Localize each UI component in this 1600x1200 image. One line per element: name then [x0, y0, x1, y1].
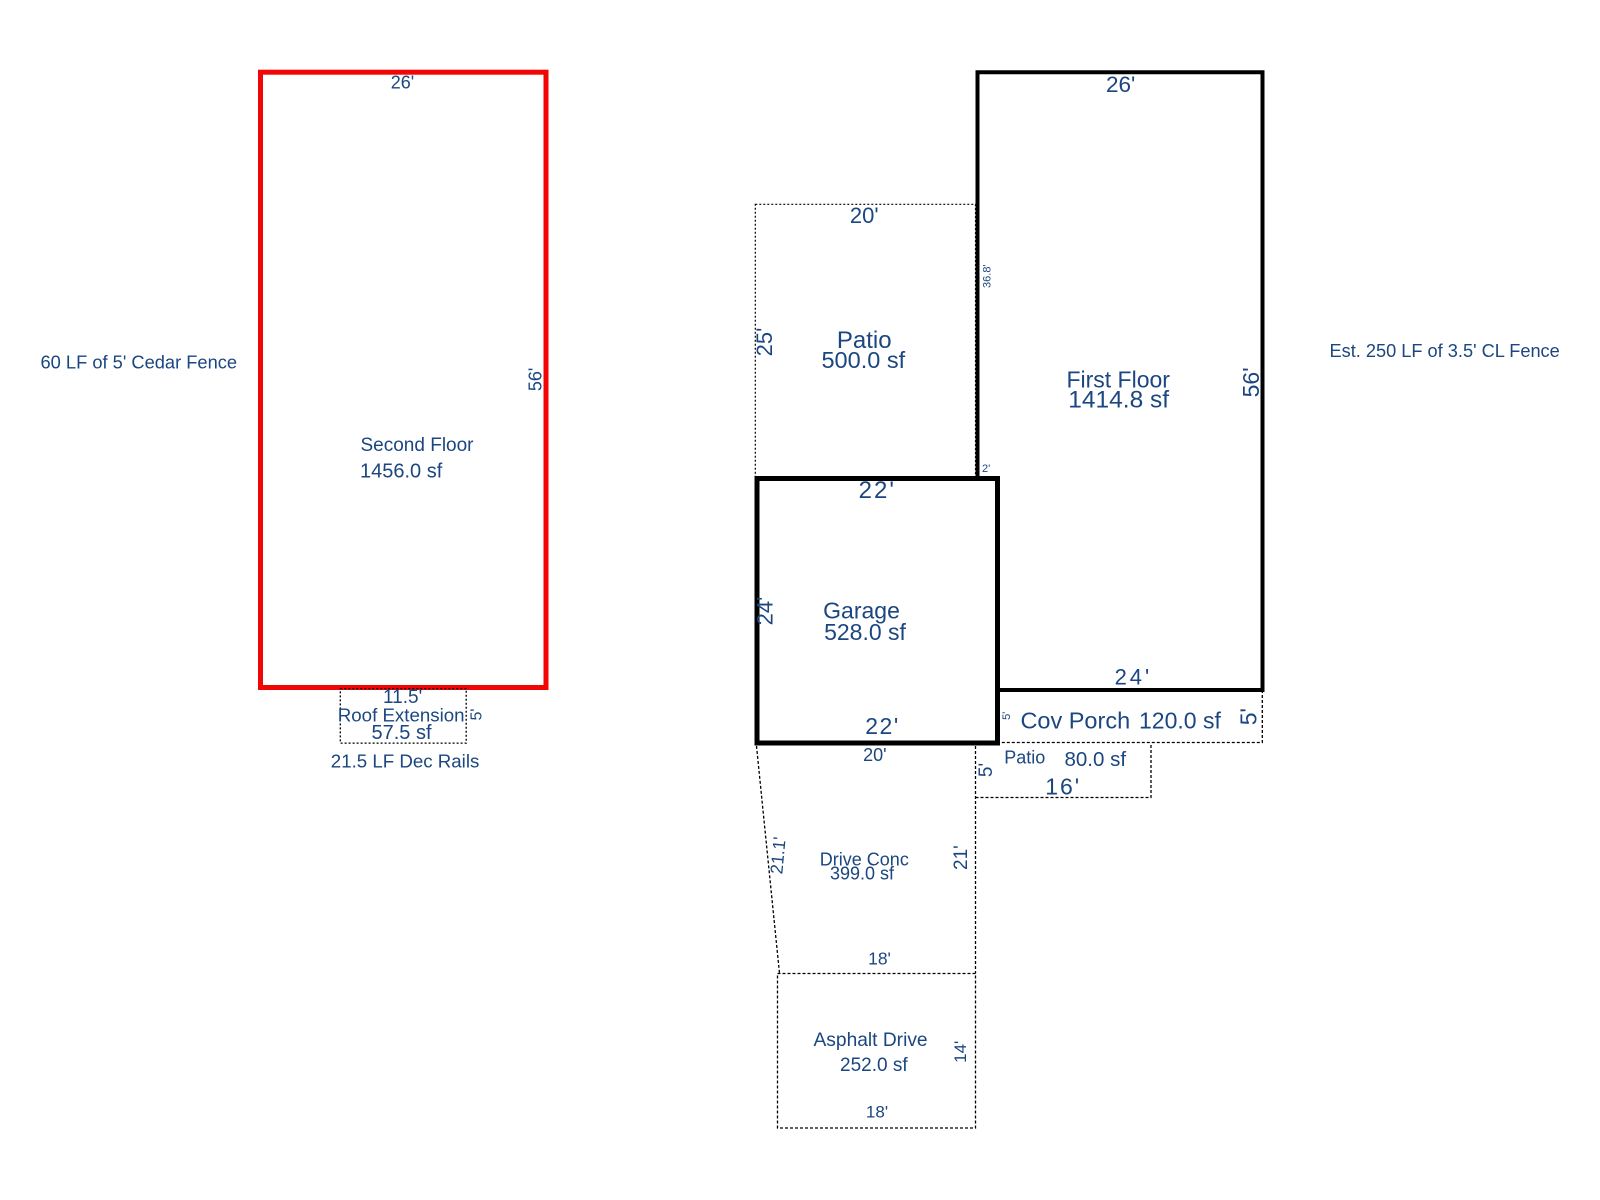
svg-text:5': 5' [468, 709, 485, 721]
svg-text:20': 20' [863, 745, 886, 765]
svg-text:56': 56' [1238, 367, 1264, 397]
svg-text:Second Floor: Second Floor [361, 435, 475, 456]
svg-text:24': 24' [1115, 664, 1153, 689]
svg-text:14': 14' [951, 1041, 970, 1063]
svg-text:24': 24' [752, 597, 777, 626]
svg-text:18': 18' [866, 1103, 888, 1122]
svg-text:36.8': 36.8' [981, 264, 993, 288]
svg-text:16': 16' [1045, 774, 1081, 800]
svg-text:5': 5' [1001, 712, 1013, 720]
svg-text:500.0 sf: 500.0 sf [821, 347, 905, 373]
svg-text:528.0 sf: 528.0 sf [824, 619, 906, 645]
svg-text:60 LF of 5' Cedar Fence: 60 LF of 5' Cedar Fence [41, 352, 238, 373]
svg-text:20': 20' [850, 203, 879, 228]
svg-text:21': 21' [951, 845, 972, 870]
svg-text:56': 56' [525, 368, 545, 391]
svg-text:Est. 250 LF of 3.5' CL Fence: Est. 250 LF of 3.5' CL Fence [1330, 341, 1560, 361]
svg-text:399.0 sf: 399.0 sf [830, 864, 895, 884]
svg-text:2': 2' [982, 463, 990, 475]
svg-text:252.0 sf: 252.0 sf [840, 1055, 908, 1076]
svg-text:5': 5' [976, 763, 997, 777]
svg-text:57.5 sf: 57.5 sf [372, 722, 432, 744]
svg-text:21.5 LF Dec Rails: 21.5 LF Dec Rails [331, 751, 480, 772]
svg-text:Asphalt Drive: Asphalt Drive [814, 1030, 928, 1051]
svg-text:Cov Porch: Cov Porch [1020, 708, 1130, 734]
svg-text:26': 26' [1106, 72, 1135, 97]
svg-text:25': 25' [752, 328, 777, 357]
svg-text:80.0 sf: 80.0 sf [1065, 748, 1127, 771]
svg-text:22': 22' [865, 713, 899, 739]
svg-text:22': 22' [859, 477, 896, 504]
svg-text:5': 5' [1235, 708, 1261, 725]
svg-text:21.1': 21.1' [766, 836, 789, 875]
svg-text:26': 26' [391, 73, 414, 93]
svg-text:18': 18' [868, 949, 891, 969]
svg-text:120.0 sf: 120.0 sf [1139, 708, 1221, 734]
svg-text:1456.0 sf: 1456.0 sf [360, 461, 443, 483]
svg-text:1414.8 sf: 1414.8 sf [1068, 387, 1169, 414]
svg-text:Patio: Patio [1004, 747, 1045, 767]
